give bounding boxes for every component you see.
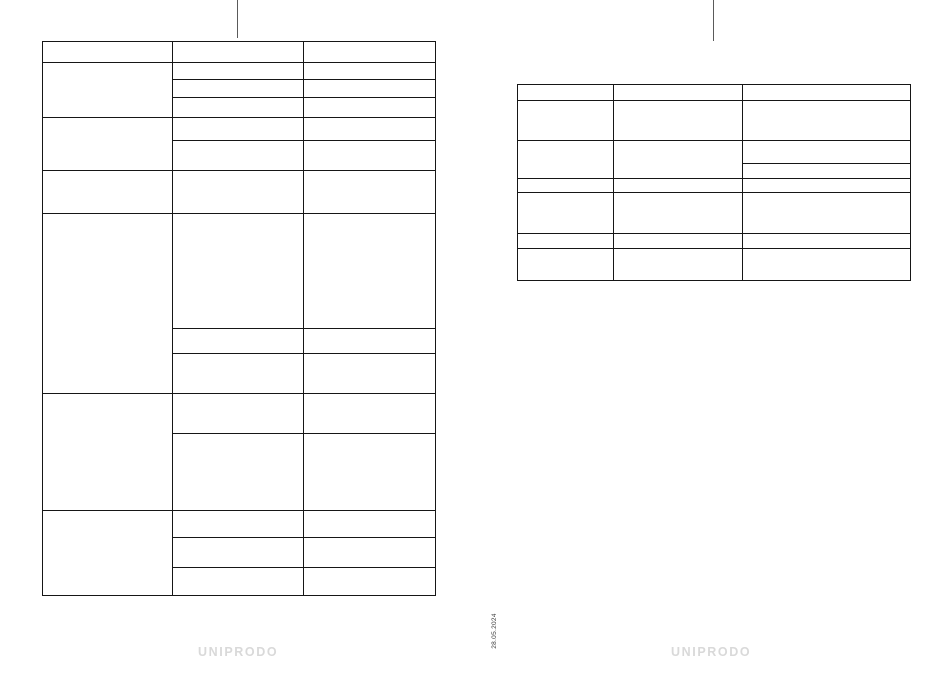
table-cell: [614, 141, 743, 179]
table-cell: [43, 118, 173, 171]
table-cell: [614, 101, 743, 141]
table-cell: [43, 63, 173, 118]
table-cell: [173, 354, 304, 394]
table-cell: [173, 394, 304, 434]
table-cell: [304, 98, 436, 118]
table-cell: [43, 394, 173, 511]
table-cell: [173, 42, 304, 63]
table-cell: [173, 118, 304, 141]
table-cell: [173, 329, 304, 354]
table-cell: [518, 249, 614, 281]
table-cell: [743, 249, 911, 281]
table-cell: [304, 171, 436, 214]
table-cell: [173, 80, 304, 98]
table-cell: [304, 141, 436, 171]
spec-table-left: [42, 41, 436, 596]
table-cell: [614, 193, 743, 234]
table-cell: [173, 63, 304, 80]
table-cell: [743, 179, 911, 193]
table-cell: [304, 511, 436, 538]
table-cell: [173, 434, 304, 511]
table-cell: [518, 141, 614, 179]
table-cell: [304, 434, 436, 511]
table-cell: [304, 42, 436, 63]
table-cell: [173, 511, 304, 538]
table-cell: [173, 141, 304, 171]
table-cell: [304, 63, 436, 80]
table-cell: [518, 85, 614, 101]
table-cell: [304, 80, 436, 98]
table-cell: [743, 141, 911, 164]
table-cell: [173, 538, 304, 568]
table-cell: [173, 214, 304, 329]
fold-mark-right: [713, 0, 714, 41]
table-cell: [743, 234, 911, 249]
document-page-spread: 28.05.2024 UNIPRODO UNIPRODO: [0, 0, 950, 674]
table-cell: [743, 85, 911, 101]
table-cell: [304, 538, 436, 568]
table-cell: [43, 214, 173, 394]
table-cell: [518, 193, 614, 234]
table-cell: [43, 42, 173, 63]
spec-table-right: [517, 84, 911, 281]
date-stamp: 28.05.2024: [490, 593, 500, 669]
table-cell: [304, 329, 436, 354]
table-cell: [173, 171, 304, 214]
fold-mark-left: [237, 0, 238, 38]
table-cell: [304, 354, 436, 394]
table-cell: [518, 101, 614, 141]
table-cell: [173, 568, 304, 596]
table-cell: [43, 511, 173, 596]
table-cell: [614, 179, 743, 193]
table-cell: [614, 234, 743, 249]
table-cell: [743, 101, 911, 141]
table-cell: [173, 98, 304, 118]
table-cell: [304, 394, 436, 434]
table-cell: [743, 164, 911, 179]
table-cell: [518, 179, 614, 193]
table-cell: [43, 171, 173, 214]
table-cell: [614, 249, 743, 281]
uniprodo-logo-left: UNIPRODO: [198, 645, 278, 659]
table-cell: [743, 193, 911, 234]
table-cell: [304, 118, 436, 141]
uniprodo-logo-right: UNIPRODO: [671, 645, 751, 659]
table-cell: [304, 214, 436, 329]
table-cell: [614, 85, 743, 101]
table-cell: [518, 234, 614, 249]
table-cell: [304, 568, 436, 596]
